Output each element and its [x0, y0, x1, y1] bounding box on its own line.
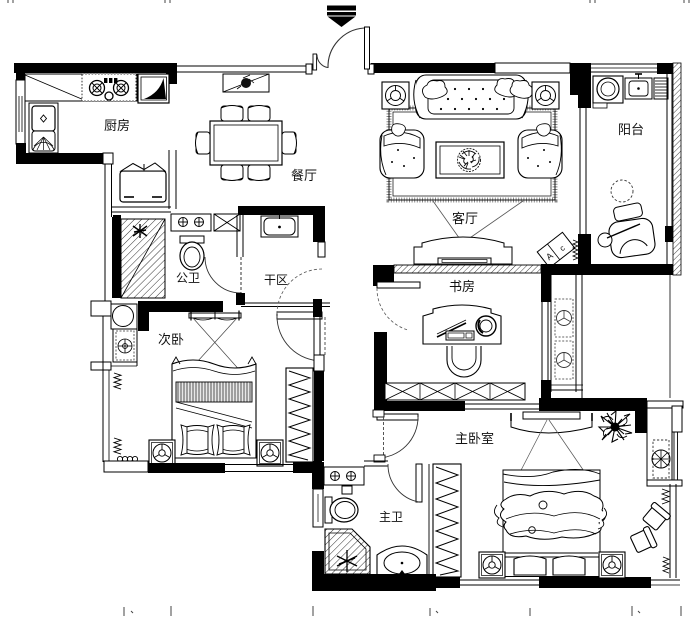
svg-text:主卧室: 主卧室: [455, 431, 494, 446]
svg-text:厨房: 厨房: [104, 118, 130, 133]
svg-text:餐厅: 餐厅: [291, 168, 317, 183]
svg-text:干区: 干区: [264, 273, 288, 287]
svg-text:主卫: 主卫: [379, 510, 403, 524]
svg-text:书房: 书房: [449, 279, 475, 294]
svg-text:公卫: 公卫: [176, 271, 200, 285]
svg-text:阳台: 阳台: [618, 122, 644, 137]
svg-text:客厅: 客厅: [452, 211, 478, 226]
svg-text:次卧: 次卧: [158, 332, 184, 347]
